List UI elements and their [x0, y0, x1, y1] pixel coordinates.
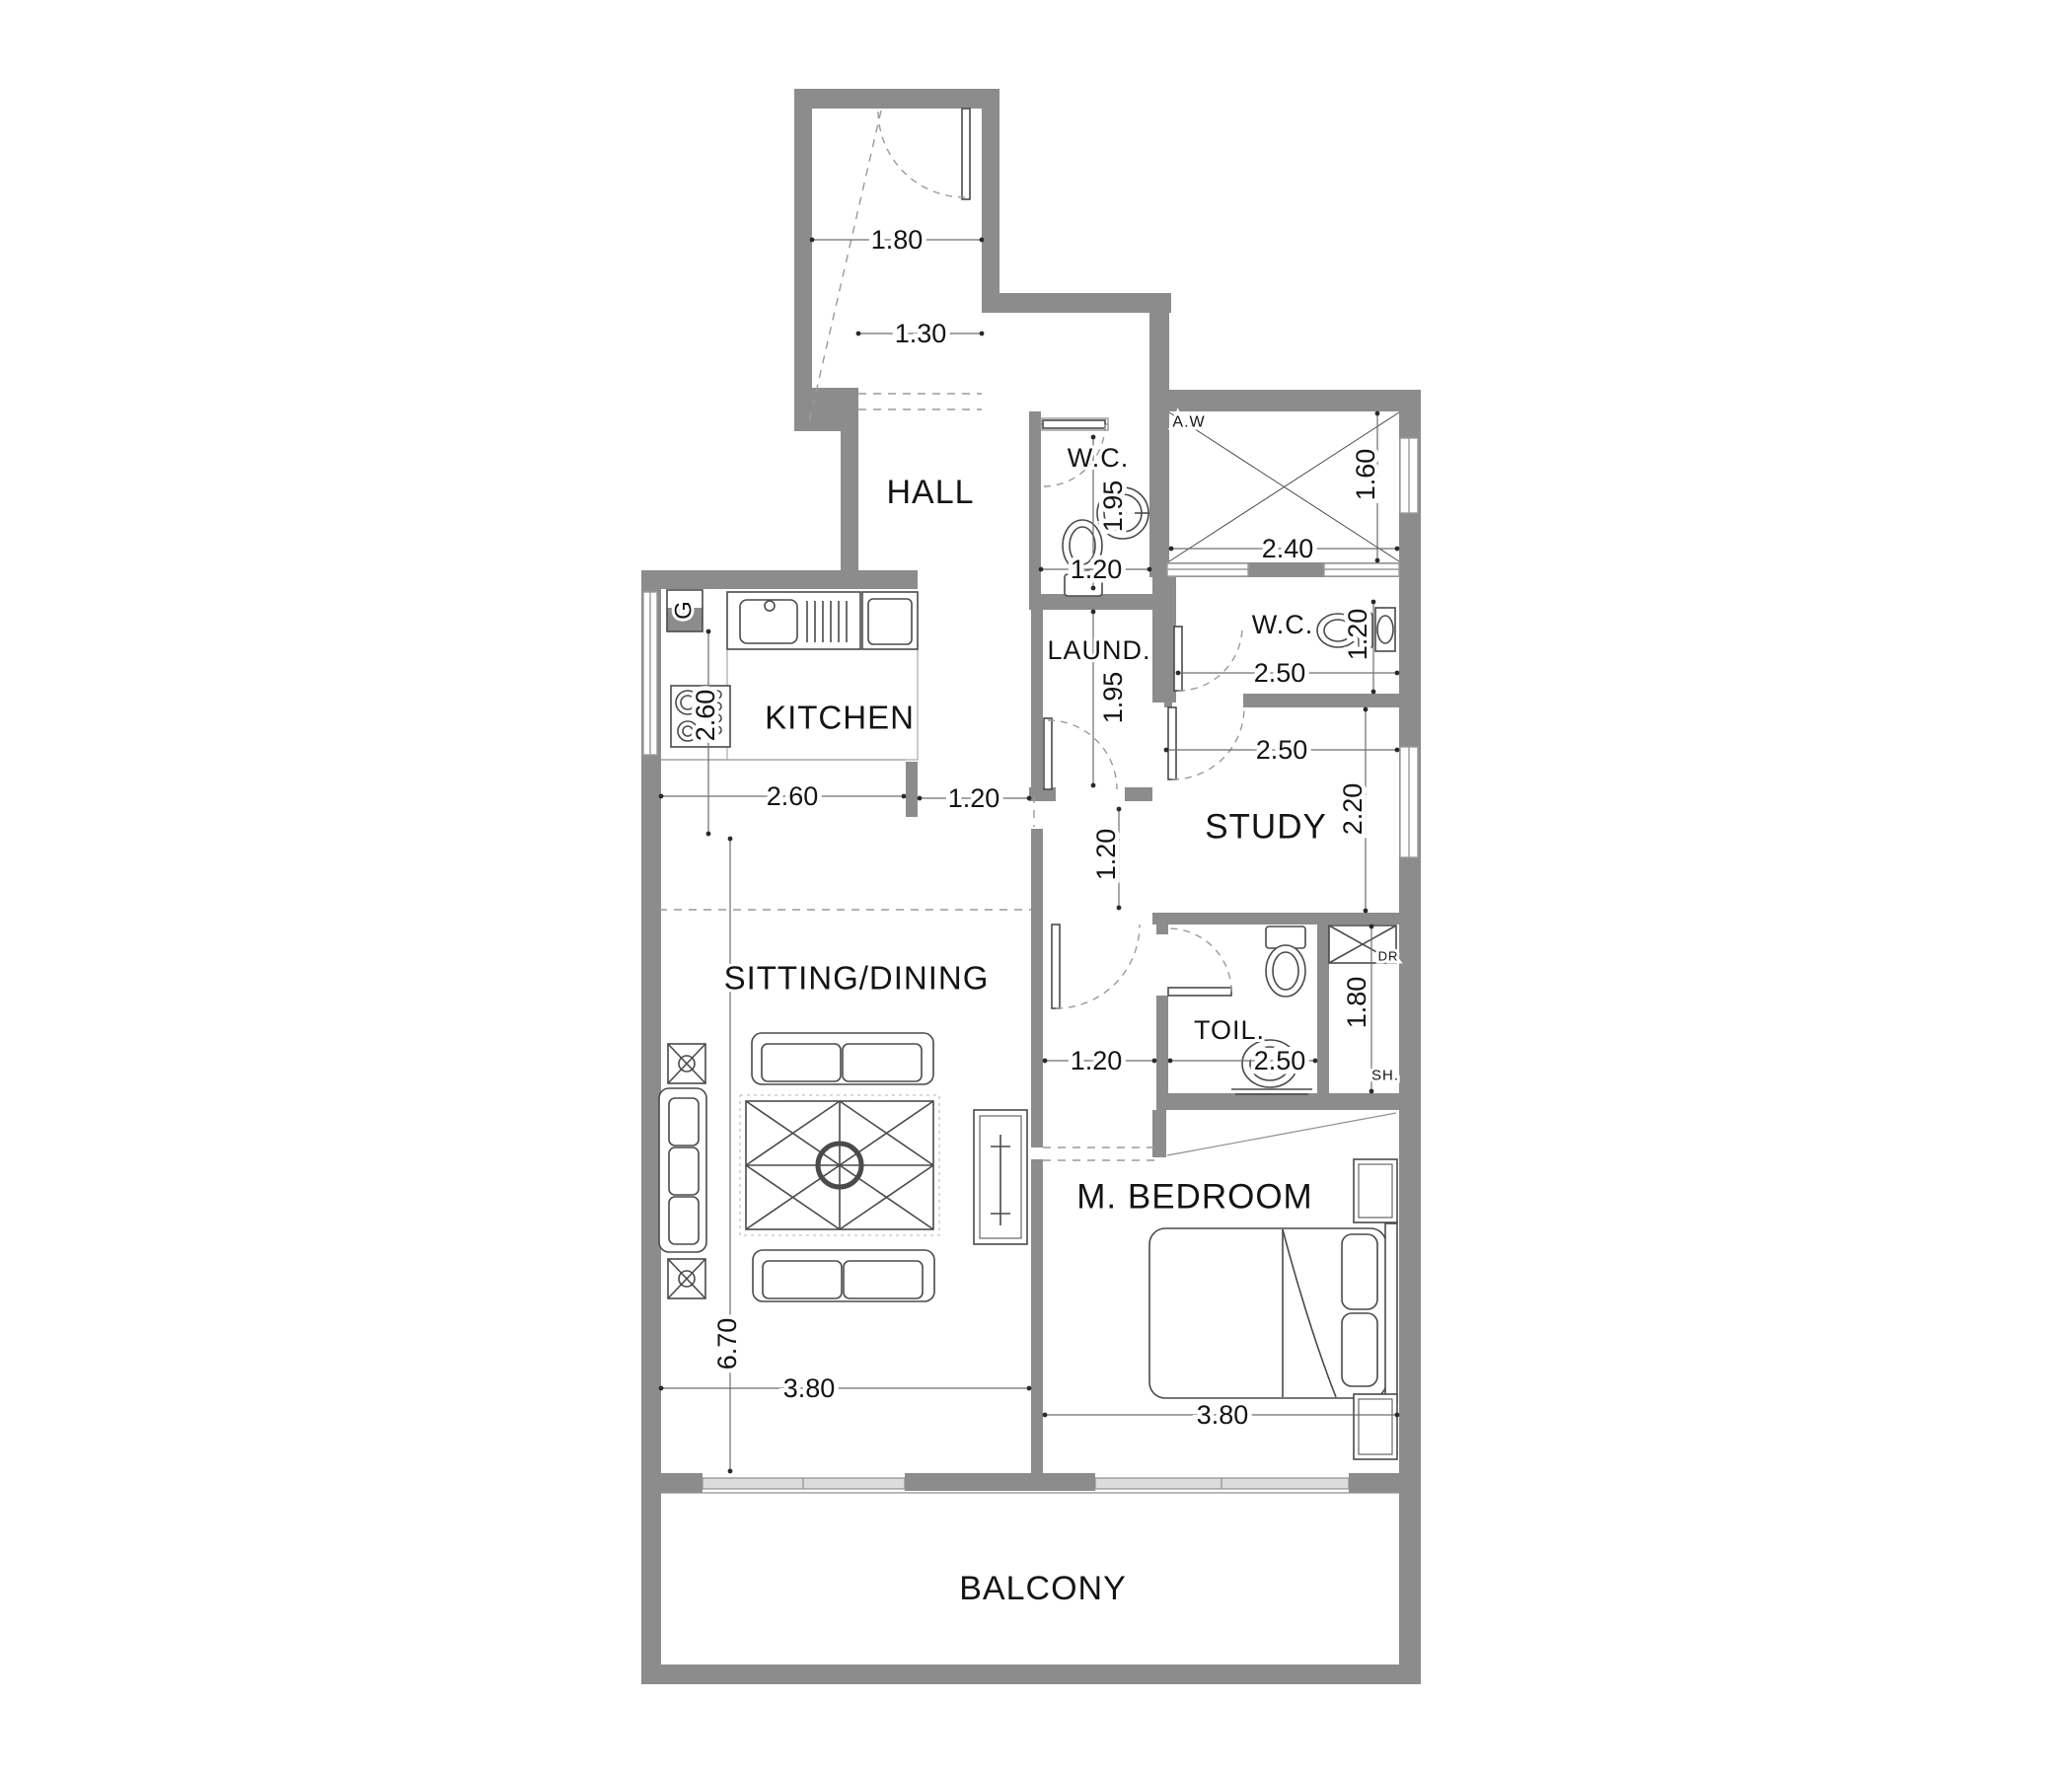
wall-segment: [1167, 390, 1421, 411]
room-label: W.C.: [1068, 443, 1130, 473]
dimension-text: 3.80: [783, 1373, 836, 1403]
dimension-text: 3.80: [1197, 1400, 1249, 1430]
nightstand-top-icon: [1354, 1159, 1397, 1222]
kitchen-sink-icon: [727, 592, 860, 649]
dimension-text: 1.20: [948, 783, 1000, 813]
dimension: 1.30: [856, 319, 985, 348]
dimension-text: 2.20: [1338, 783, 1368, 836]
dimension-text: 6.70: [712, 1318, 742, 1370]
room-label: G: [671, 600, 698, 620]
wall-segment: [794, 89, 812, 431]
floor-edge-line: [1167, 1113, 1396, 1155]
toilet-room-toilet-icon: [1266, 926, 1305, 997]
tv-console-icon: [974, 1110, 1027, 1244]
dimension: 2.60: [691, 629, 720, 837]
room-label: TOIL.: [1194, 1015, 1265, 1045]
aw-bottom-window-left-icon: [1167, 563, 1248, 576]
rug-icon: [740, 1095, 939, 1235]
wall-segment: [1156, 996, 1168, 1093]
room-label: STUDY: [1205, 808, 1327, 847]
dimension-text: 2.60: [767, 781, 819, 811]
walls-layer: [641, 89, 1421, 1684]
kitchen-left-window-icon: [643, 592, 657, 755]
wall-segment: [1152, 913, 1399, 925]
dimension-text: 2.40: [1262, 534, 1314, 563]
wall-segment: [1149, 313, 1169, 577]
dimension: 1.20: [1039, 555, 1152, 584]
side-table-top-icon: [668, 1044, 705, 1083]
entry-door-icon: [878, 109, 970, 199]
wall-segment: [905, 1473, 1095, 1491]
wall-segment: [1031, 608, 1043, 792]
wall-segment: [812, 388, 858, 411]
side-table-bottom-icon: [668, 1259, 705, 1298]
room-label: HALL: [886, 474, 974, 511]
wall-segment: [1156, 925, 1168, 934]
floor-plan-canvas: 1.801.301.951.202.401.602.501.201.952.50…: [0, 0, 2072, 1776]
wall-segment: [841, 431, 858, 589]
sofa-two-seat-bottom-icon: [753, 1250, 934, 1301]
dimension: 3.80: [1043, 1400, 1400, 1430]
dimension-text: 2.50: [1254, 1046, 1306, 1075]
dimension: 1.20: [1091, 807, 1121, 911]
dimension-text: 1.20: [1071, 1046, 1123, 1075]
wall-segment: [1243, 694, 1421, 707]
dimension-text: 1.80: [1342, 977, 1371, 1029]
dimension: 6.70: [712, 837, 742, 1474]
laundry-door-icon: [1044, 718, 1117, 789]
dimension-text: 1.20: [1071, 555, 1123, 584]
toilet-door-icon: [1168, 928, 1231, 996]
dimension: 1.80: [1342, 925, 1373, 1094]
balcony-sliding-door-left: [703, 1478, 905, 1489]
dimension-text: 1.80: [871, 225, 924, 255]
room-label: M. BEDROOM: [1076, 1178, 1312, 1217]
aw-bottom-window-right-icon: [1324, 563, 1399, 576]
wall-segment: [1031, 1159, 1043, 1473]
dimension: 2.20: [1338, 707, 1368, 914]
room-label: SITTING/DINING: [724, 960, 990, 997]
dimension: 1.20: [1043, 1046, 1157, 1075]
room-label: W.C.: [1252, 610, 1314, 639]
dimension-text: 1.95: [1098, 672, 1128, 724]
wall-segment: [794, 411, 858, 431]
wall-segment: [1317, 925, 1329, 1095]
balcony-sliding-door-right: [1095, 1478, 1349, 1489]
wc2-door-icon: [1174, 627, 1242, 691]
room-label: A.W: [1172, 414, 1205, 431]
wall-segment: [1031, 829, 1043, 913]
dimension-text: 1.20: [1343, 609, 1372, 661]
dimension: 2.50: [1164, 735, 1400, 765]
dimension-text: 1.60: [1351, 449, 1380, 501]
wall-segment: [1031, 913, 1043, 1147]
dashed-opening-line: [809, 111, 881, 422]
study-door-icon: [1168, 707, 1244, 779]
dimension-text: 2.50: [1254, 658, 1306, 688]
room-label: SH.: [1371, 1068, 1399, 1084]
wall-segment: [1164, 694, 1172, 707]
study-right-window-icon: [1400, 747, 1418, 857]
sofa-three-seat-left-icon: [659, 1088, 706, 1252]
dimension: 1.20: [918, 783, 1032, 813]
wall-segment: [649, 570, 918, 589]
floor-plan-page: 1.801.301.951.202.401.602.501.201.952.50…: [0, 0, 2072, 1776]
dimension: 2.40: [1169, 534, 1400, 563]
wall-segment: [906, 762, 918, 817]
room-label: LAUND.: [1047, 635, 1150, 665]
wall-segment: [1164, 577, 1176, 627]
room-label: DR: [1378, 949, 1399, 964]
washing-machine-icon: [862, 592, 918, 649]
wall-segment: [641, 1473, 703, 1493]
dimension-text: 1.30: [895, 319, 947, 348]
room-label: BALCONY: [959, 1570, 1127, 1607]
sofa-two-seat-top-icon: [752, 1033, 933, 1084]
dimension: 3.80: [659, 1373, 1032, 1403]
room-label: KITCHEN: [765, 700, 915, 736]
dimension-text: 1.95: [1098, 481, 1128, 533]
corridor-door-icon: [1052, 925, 1140, 1008]
wall-segment: [1349, 1473, 1401, 1493]
dimension-text: 2.60: [691, 690, 720, 742]
wall-segment: [1029, 411, 1041, 600]
wall-segment: [982, 109, 999, 298]
wall-segment: [982, 293, 1171, 313]
dimension: 1.20: [1343, 600, 1375, 695]
wall-segment: [641, 1665, 1421, 1684]
dimension-text: 2.50: [1256, 735, 1308, 765]
nightstand-bottom-icon: [1354, 1394, 1397, 1459]
dimension: 2.60: [659, 781, 907, 811]
wall-segment: [1156, 1093, 1399, 1110]
wall-segment: [794, 89, 999, 109]
bed-icon: [1149, 1223, 1397, 1403]
wall-segment: [1399, 411, 1421, 1684]
aw-right-window-icon: [1400, 438, 1418, 513]
wall-segment: [1152, 1110, 1166, 1157]
wall-segment: [1125, 787, 1152, 801]
wc2-sink-icon: [1375, 608, 1395, 651]
doors-layer: [878, 109, 1244, 1008]
dimension-text: 1.20: [1091, 829, 1121, 881]
dimension: 1.80: [810, 225, 985, 255]
